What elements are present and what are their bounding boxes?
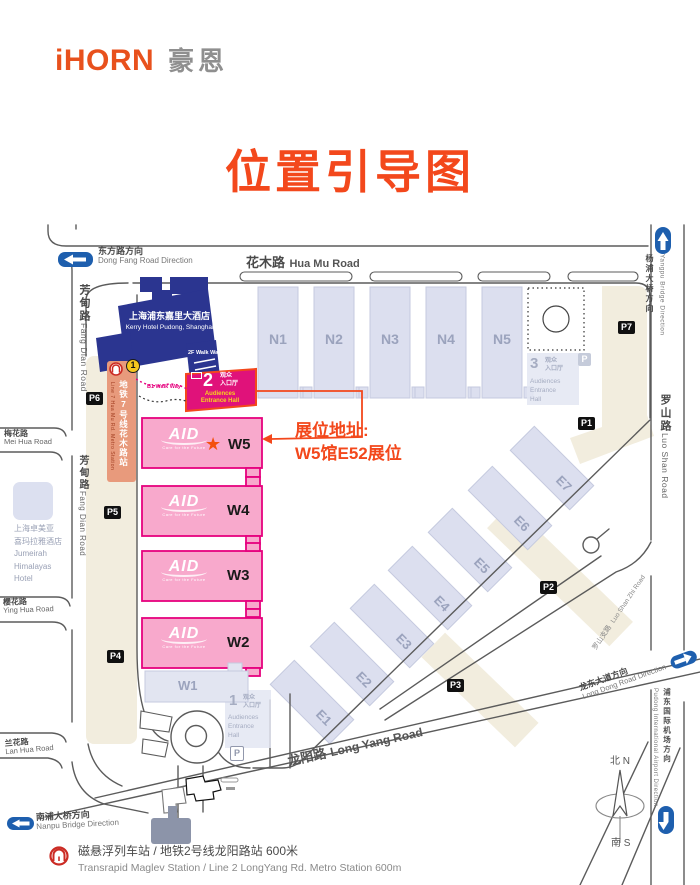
compass-south-label: 南 S bbox=[611, 838, 630, 850]
road-sign-1-icon: 1 bbox=[126, 359, 140, 373]
hall-label-n2: N2 bbox=[321, 331, 347, 347]
hall-label-n3: N3 bbox=[377, 331, 403, 347]
huamu-road-label: 花木路 Hua Mu Road bbox=[246, 254, 360, 272]
station-stem bbox=[168, 806, 177, 819]
gate-building bbox=[186, 776, 221, 801]
hall-label-w2: W2 bbox=[227, 634, 250, 651]
maglev-legend-en: Transrapid Maglev Station / Line 2 LongY… bbox=[78, 862, 401, 874]
parking-p3: P3 bbox=[447, 679, 464, 692]
kerry-hotel-en: Kerry Hotel Pudong, Shanghai bbox=[112, 324, 227, 331]
jumeirah-hotel-label: 上海卓美亚 喜玛拉雅酒店 Jumeirah Himalayas Hotel bbox=[14, 523, 62, 586]
dongfang-direction-label: 东方路方向 Dong Fang Road Direction bbox=[98, 246, 193, 266]
line7-metro-en: Line 7 Hua Mu Rd. Metro Station bbox=[109, 382, 114, 470]
bus-stop bbox=[221, 778, 238, 782]
entrance2-cn: 观众入口厅 bbox=[220, 372, 238, 388]
maglev-station-block bbox=[151, 818, 191, 844]
maglev-legend-cn: 磁悬浮列车站 / 地铁2号线龙阳路站 600米 bbox=[78, 845, 298, 859]
metro-logo-legend bbox=[51, 848, 68, 865]
parking-icon-small: P bbox=[578, 353, 591, 366]
jumeirah-hotel-shape bbox=[13, 482, 53, 520]
hall-label-n1: N1 bbox=[265, 331, 291, 347]
airport-direction-en: Pudong International Airport Direction bbox=[652, 688, 658, 807]
entrance1-en: Audiences Entrance Hall bbox=[228, 713, 258, 740]
entrance2-number: 2 bbox=[203, 370, 213, 391]
entrance2-door-icon bbox=[191, 372, 202, 379]
aid-logo-w2: AID Care for the Future bbox=[152, 627, 216, 650]
location-guide-map: iHORN 豪恩 位置引导图 东方路方向 Dong Fang Road Dire… bbox=[0, 0, 700, 885]
entrance3-cn: 观众入口厅 bbox=[545, 357, 563, 373]
entrance2-en1: Audiences bbox=[186, 391, 254, 398]
walkway-b1-label: B1 Walk Way bbox=[147, 384, 181, 390]
hall-label-w1: W1 bbox=[178, 678, 198, 693]
kerry-hotel-cn: 上海浦东嘉里大酒店 bbox=[112, 311, 227, 321]
aid-logo-w3: AID Care for the Future bbox=[152, 560, 216, 583]
parking-p2: P2 bbox=[540, 581, 557, 594]
aid-logo-w4: AID Care for the Future bbox=[152, 495, 216, 518]
booth-annotation-line2: W5馆E52展位 bbox=[295, 444, 402, 464]
entrance2-en2: Entrance Hall bbox=[186, 398, 254, 405]
hall-label-n5: N5 bbox=[489, 331, 515, 347]
parking-p7: P7 bbox=[618, 321, 635, 334]
lane-dashes bbox=[240, 272, 638, 281]
line7-metro-cn: 地铁7号线花木路站 bbox=[119, 380, 128, 467]
hall-label-n4: N4 bbox=[433, 331, 459, 347]
logo-text-cn: 豪恩 bbox=[168, 47, 228, 77]
walk-path-2 bbox=[139, 396, 186, 402]
booth-annotation-line1: 展位地址: bbox=[295, 421, 369, 441]
hall-label-w3: W3 bbox=[227, 567, 250, 584]
entrance1-cn: 观众入口厅 bbox=[243, 694, 261, 710]
page-title: 位置引导图 bbox=[0, 146, 700, 199]
fangdian-road-label-2: 芳甸路Fang Dian Road bbox=[74, 455, 90, 595]
parking-p6: P6 bbox=[86, 392, 103, 405]
hall-label-w4: W4 bbox=[227, 502, 250, 519]
parking-p1: P1 bbox=[578, 417, 595, 430]
aid-logo-w5: AID Care for the Future bbox=[152, 428, 216, 451]
compass-shape bbox=[596, 770, 644, 843]
fangdian-road-label-1: 芳甸路Fang Dian Road bbox=[76, 284, 92, 464]
walkway-2f-label: 2F Walk Way bbox=[188, 350, 221, 356]
parking-p5: P5 bbox=[104, 506, 121, 519]
yinghua-road-label: 樱花路 Ying Hua Road bbox=[3, 596, 54, 616]
booth-arrowhead bbox=[262, 434, 272, 444]
entrance3-number: 3 bbox=[530, 355, 538, 372]
parking-icon-outline: P bbox=[230, 746, 244, 761]
meihua-road-label: 梅花路 Mei Hua Road bbox=[4, 429, 52, 447]
yangpu-direction-en: Yangpu Bridge Direction bbox=[658, 254, 665, 335]
airport-direction-cn: 浦东国际机场方向 bbox=[663, 688, 671, 764]
bus-stop-2 bbox=[226, 787, 235, 790]
entrance3-en: Audiences Entrance Hall bbox=[530, 377, 560, 404]
luoshan-road-label: 罗山路Luo Shan Road bbox=[657, 394, 673, 526]
parking-p4: P4 bbox=[107, 650, 124, 663]
dropoff-circle bbox=[543, 306, 569, 332]
compass-north-label: 北 N bbox=[610, 756, 630, 768]
yangpu-direction-cn: 杨浦大桥方向 bbox=[645, 254, 653, 314]
entrance1-number: 1 bbox=[229, 692, 237, 709]
hall-label-w5: W5 bbox=[228, 436, 251, 453]
logo-text-en: iHORN bbox=[55, 44, 154, 79]
